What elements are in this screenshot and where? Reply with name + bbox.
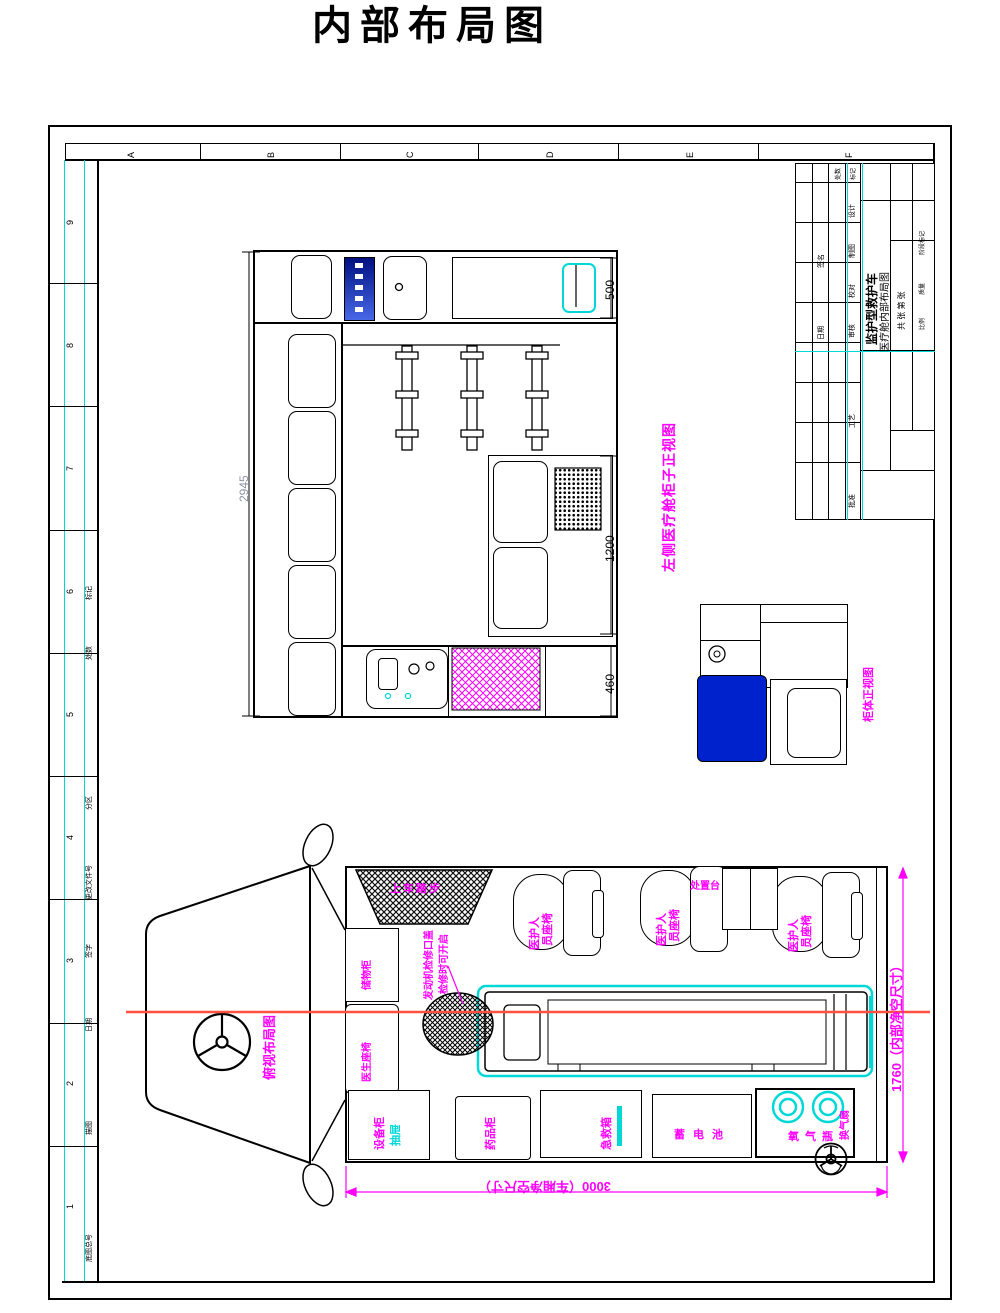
title-block-line (890, 163, 891, 470)
frame-divider (48, 406, 97, 407)
cabinet-door (493, 547, 548, 629)
title-block-line (795, 462, 860, 463)
frame-divider (48, 1023, 97, 1024)
control-panel (344, 257, 375, 321)
frame-line (97, 160, 99, 1283)
cabinet-door (288, 642, 336, 716)
page-title: 内部布局图 (312, 6, 552, 46)
title-block-line (795, 182, 860, 183)
title-block-line (890, 430, 935, 431)
frame-divider (48, 1146, 97, 1147)
attendant-seat (640, 870, 696, 946)
storage-box (345, 928, 399, 1002)
equipment-cabinet (348, 1090, 430, 1160)
title-block-line (860, 470, 935, 471)
title-block-line (795, 222, 860, 223)
title-block-line (860, 200, 935, 201)
worktable-line (750, 868, 751, 930)
doctor-seat (345, 1004, 399, 1094)
elevation-line (341, 645, 618, 647)
attendant-seat (513, 874, 569, 950)
title-block-line (795, 422, 860, 423)
elevation-line (253, 322, 618, 324)
oxygen-bottle-front (562, 263, 596, 313)
cabinet-door (493, 461, 548, 543)
cabinet-door (288, 411, 336, 485)
elevation-line (341, 322, 343, 718)
title-block-line (795, 382, 860, 383)
title-block-line-cyan (847, 163, 848, 520)
frame-divider (48, 776, 97, 777)
cabinet-door (291, 255, 332, 319)
seat-cushion-blue (697, 675, 767, 762)
oxygen-cabinet (755, 1088, 855, 1158)
title-block-line (795, 302, 860, 303)
title-block-line (795, 342, 860, 343)
cabinet-door (288, 488, 336, 562)
firstaid-cabinet (540, 1090, 642, 1158)
drawing-sheet: 内部布局图 A B C D E F 9 8 7 6 5 4 3 2 1 标记 处… (0, 0, 1000, 1313)
title-block-line (912, 163, 913, 430)
frame-tick (65, 143, 66, 160)
title-block-line-cyan (862, 163, 863, 520)
cabinet-door (787, 688, 841, 758)
battery-box (652, 1094, 752, 1158)
attendant-seat (772, 876, 828, 952)
frame-tick (758, 143, 759, 160)
attendant-seat-pad (851, 892, 863, 940)
title-block-line (795, 262, 860, 263)
frame-tick (200, 143, 201, 160)
frame-line (65, 159, 935, 161)
frame-tick (618, 143, 619, 160)
sink-basin (378, 658, 398, 690)
attendant-seat-pad (592, 890, 604, 938)
frame-line (62, 1281, 935, 1283)
frame-line-cyan (64, 160, 65, 1283)
frame-line (65, 143, 935, 144)
title-block-line (860, 163, 861, 520)
frame-line-cyan (84, 160, 85, 1283)
frame-tick (478, 143, 479, 160)
elevation-line (448, 645, 449, 718)
medicine-cabinet (455, 1096, 531, 1160)
frame-divider (48, 653, 97, 654)
frame-tick (340, 143, 341, 160)
frame-divider (48, 530, 97, 531)
control-panel-buttons (355, 263, 363, 315)
title-block-line-cyan (795, 351, 935, 352)
cabinet-door (383, 256, 427, 320)
frame-divider (48, 899, 97, 900)
detail-line (760, 622, 848, 623)
cabinet-door (288, 334, 336, 408)
title-block-line (890, 240, 935, 241)
elevation-line (545, 645, 546, 718)
cabinet-door (288, 565, 336, 639)
cabinet-handle (617, 1106, 622, 1146)
detail-line (700, 640, 760, 641)
frame-divider (48, 283, 97, 284)
rear-door-line (876, 866, 877, 1163)
